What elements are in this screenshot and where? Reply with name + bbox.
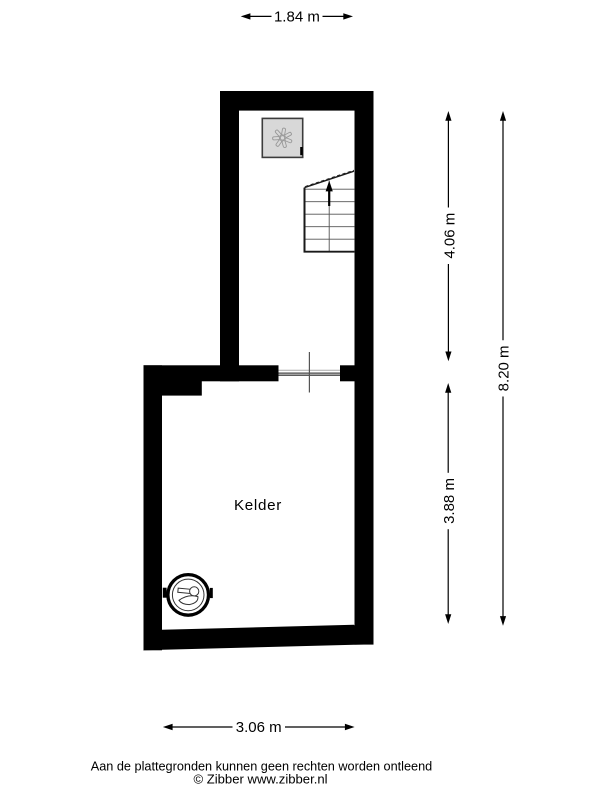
svg-text:Kelder: Kelder: [234, 497, 282, 514]
svg-text:8.20 m: 8.20 m: [496, 345, 513, 391]
svg-text:© Zibber www.zibber.nl: © Zibber www.zibber.nl: [193, 772, 327, 787]
svg-text:3.06 m: 3.06 m: [236, 719, 282, 736]
svg-text:1.84 m: 1.84 m: [274, 9, 320, 26]
svg-text:3.88 m: 3.88 m: [441, 478, 458, 524]
svg-text:4.06 m: 4.06 m: [441, 213, 458, 259]
